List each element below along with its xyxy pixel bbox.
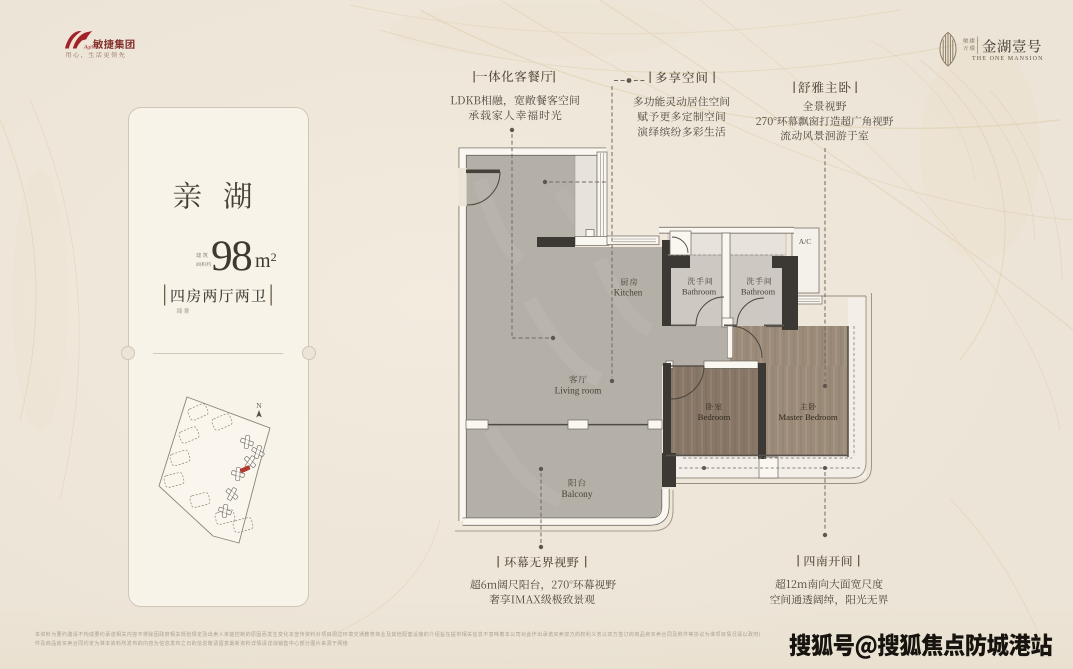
svg-text:Living room: Living room (555, 387, 603, 397)
svg-text:A/C: A/C (799, 237, 812, 246)
svg-text:Kitchen: Kitchen (614, 288, 643, 298)
svg-text:Master Bedroom: Master Bedroom (778, 412, 838, 422)
svg-text:Balcony: Balcony (562, 490, 593, 500)
svg-text:Bedroom: Bedroom (698, 412, 731, 422)
svg-text:Bathroom: Bathroom (741, 287, 776, 297)
svg-text:Bathroom: Bathroom (682, 287, 717, 297)
svg-text:N: N (256, 401, 262, 410)
